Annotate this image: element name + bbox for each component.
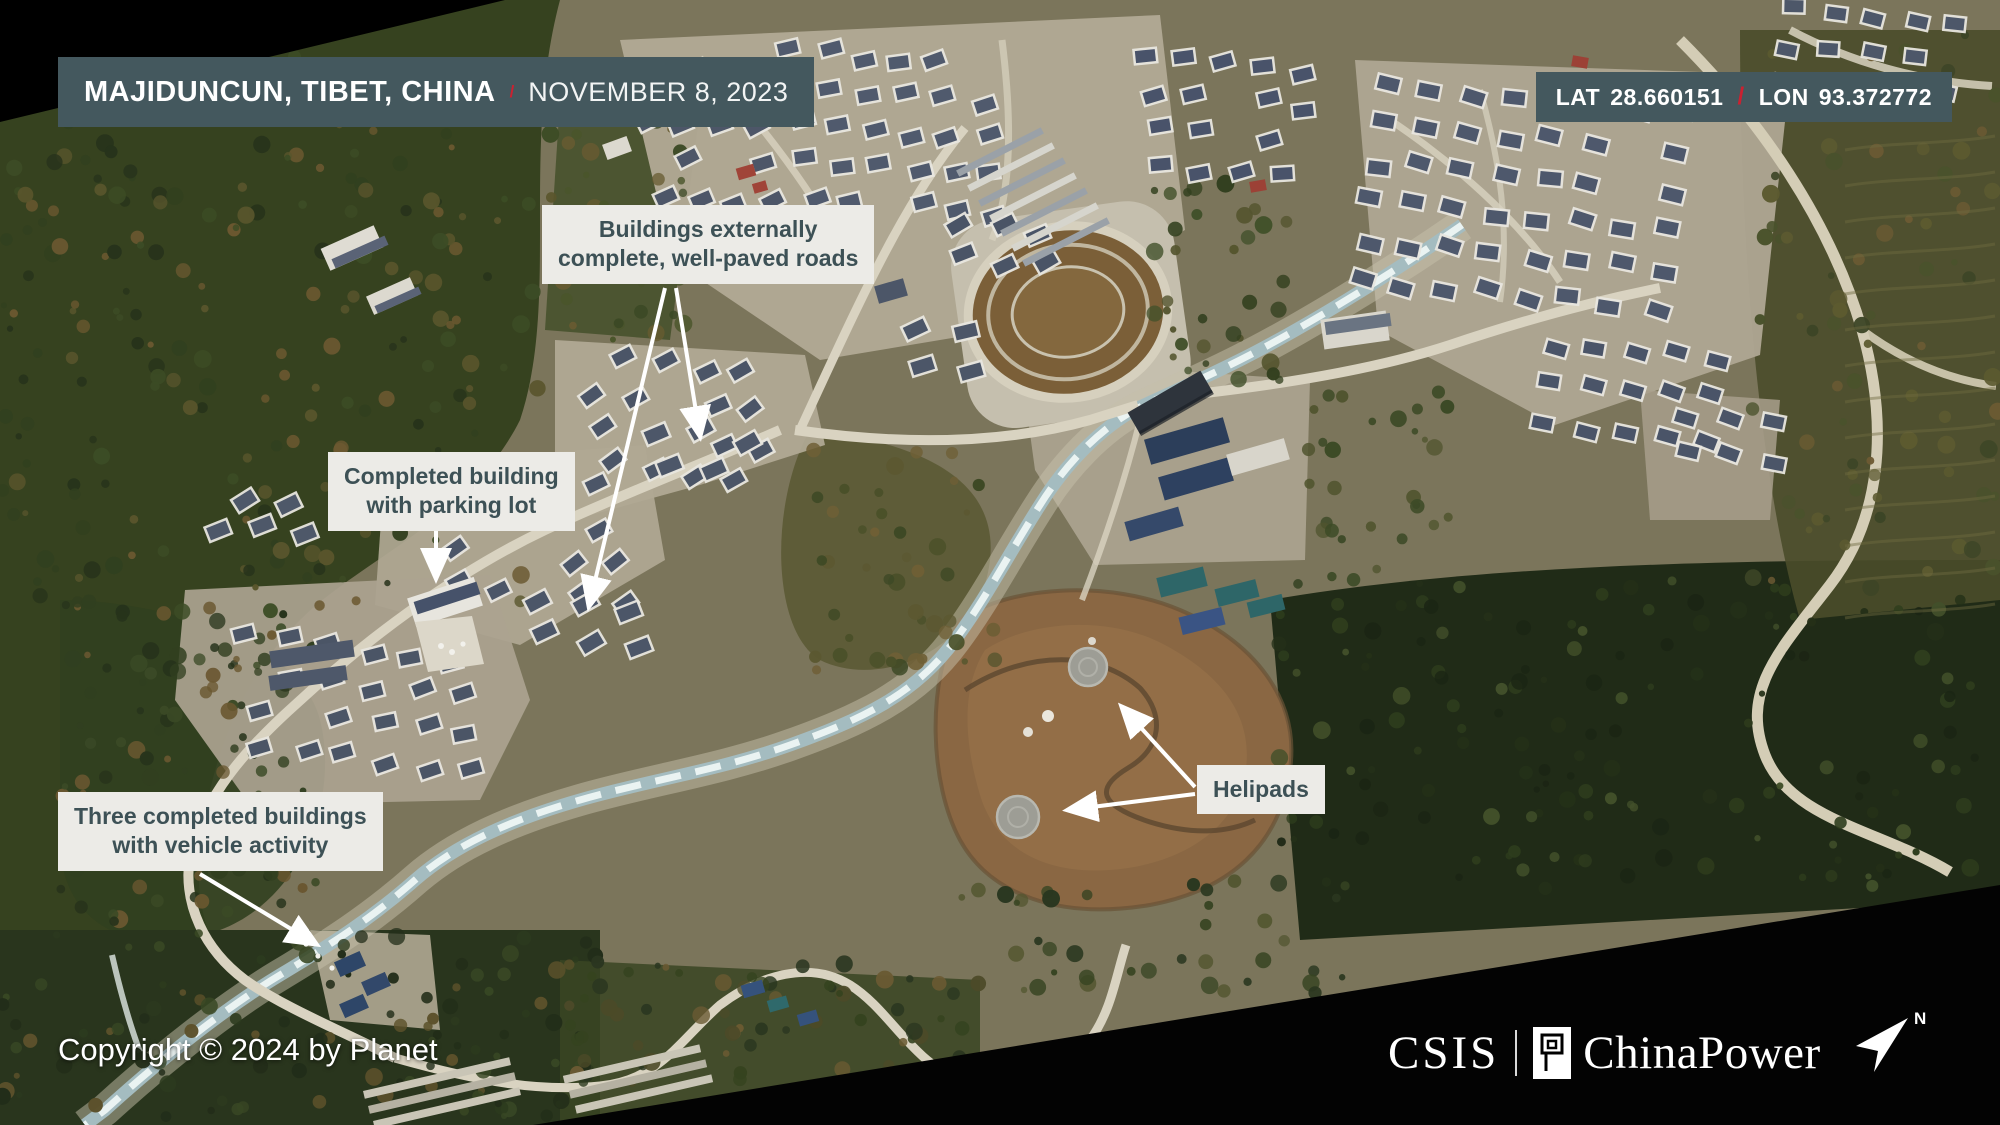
chinapower-seal-icon <box>1533 1027 1571 1079</box>
separator-slash: / <box>510 82 515 102</box>
coordinates-bar: LAT 28.660151 / LON 93.372772 <box>1536 72 1952 122</box>
lon-label: LON <box>1759 84 1809 111</box>
callout-line: Helipads <box>1213 775 1309 804</box>
annotated-satellite-image: MAJIDUNCUN, TIBET, CHINA / NOVEMBER 8, 2… <box>0 0 2000 1125</box>
callout-line: with parking lot <box>344 491 559 520</box>
callout-line: Completed building <box>344 462 559 491</box>
north-label: N <box>1914 1009 1926 1028</box>
callout-helipads: Helipads <box>1197 765 1325 814</box>
north-arrow: N <box>1846 1004 1932 1084</box>
lon-value: 93.372772 <box>1819 84 1932 111</box>
csis-wordmark: CSIS <box>1388 1026 1499 1080</box>
date-label: NOVEMBER 8, 2023 <box>528 77 788 108</box>
copyright-text: Copyright © 2024 by Planet <box>58 1032 438 1068</box>
location-date-bar: MAJIDUNCUN, TIBET, CHINA / NOVEMBER 8, 2… <box>58 57 814 127</box>
chinapower-wordmark: ChinaPower <box>1583 1026 1820 1080</box>
lat-value: 28.660151 <box>1610 84 1723 111</box>
callout-line: Three completed buildings <box>74 802 367 831</box>
callout-buildings-complete: Buildings externally complete, well-pave… <box>542 205 874 284</box>
logo-divider <box>1515 1030 1517 1076</box>
location-label: MAJIDUNCUN, TIBET, CHINA <box>84 76 496 109</box>
callout-three-buildings: Three completed buildings with vehicle a… <box>58 792 383 871</box>
separator-slash: / <box>1737 83 1744 111</box>
csis-chinapower-logo: CSIS ChinaPower <box>1388 1026 1821 1080</box>
callout-completed-building: Completed building with parking lot <box>328 452 575 531</box>
callout-line: Buildings externally <box>558 215 858 244</box>
annotation-arrows <box>0 0 2000 1125</box>
callout-line: complete, well-paved roads <box>558 244 858 273</box>
callout-line: with vehicle activity <box>74 831 367 860</box>
lat-label: LAT <box>1556 84 1601 111</box>
